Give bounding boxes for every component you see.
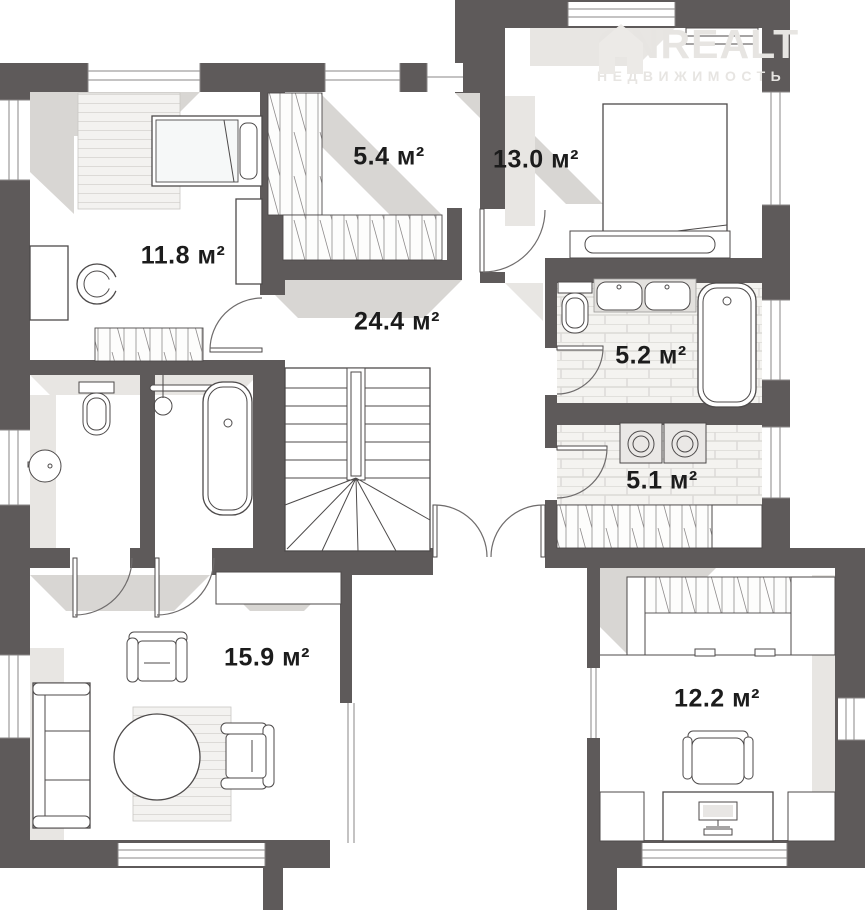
bath-fixtures — [150, 375, 252, 515]
watermark: ONREALT НЕДВИЖИМОСТЬ — [597, 22, 799, 84]
floor-plan-canvas — [0, 0, 865, 910]
door-bedroom-1 — [210, 298, 262, 352]
keyboard-icon — [704, 829, 732, 835]
wardrobe-hatch — [283, 215, 442, 260]
wardrobe-hatch — [557, 505, 712, 548]
window — [0, 100, 30, 180]
cabinet-icon — [600, 792, 644, 841]
bed-icon — [570, 104, 730, 258]
window — [0, 655, 30, 738]
sink-icon — [597, 282, 642, 310]
glass-wall — [348, 703, 354, 843]
window — [838, 698, 865, 740]
window — [762, 92, 790, 205]
sofa-icon — [33, 683, 90, 828]
wardrobe-hatch — [268, 93, 322, 215]
sink-icon — [28, 450, 61, 482]
house-logo-icon — [597, 22, 645, 76]
bathtub-icon — [203, 382, 252, 515]
cabinet-icon — [788, 792, 835, 841]
round-chair-icon — [77, 264, 119, 304]
cabinet-icon — [236, 199, 262, 284]
stairs-icon — [285, 368, 430, 551]
monitor-icon — [699, 802, 737, 835]
sink-icon — [645, 282, 690, 310]
console-icon — [216, 572, 341, 604]
window — [587, 668, 600, 738]
window — [325, 63, 400, 92]
armchair-icon — [127, 632, 187, 682]
cabinet-icon — [712, 505, 762, 548]
window — [88, 63, 200, 92]
office-furniture — [600, 577, 835, 841]
floor-plan: 11.8 м² 5.4 м² 13.0 м² 24.4 м² 5.2 м² 5.… — [0, 0, 865, 910]
armchair-icon — [221, 723, 274, 789]
bed-icon — [152, 116, 262, 186]
office-chair-icon — [683, 731, 753, 784]
double-door-living — [433, 505, 545, 557]
round-table-icon — [114, 714, 200, 800]
washing-machine-icon — [620, 423, 662, 463]
window — [427, 63, 463, 92]
toilet-icon — [79, 382, 114, 435]
bathtub-icon — [698, 283, 756, 407]
closet-icon — [600, 577, 835, 656]
toilet-icon — [558, 282, 592, 333]
wardrobe-hatch — [95, 328, 203, 361]
window — [0, 430, 30, 505]
window — [762, 427, 790, 498]
window — [118, 843, 265, 866]
washing-machine-icon — [664, 423, 706, 463]
desk-icon — [30, 246, 68, 320]
window — [642, 843, 787, 866]
window — [762, 300, 790, 380]
